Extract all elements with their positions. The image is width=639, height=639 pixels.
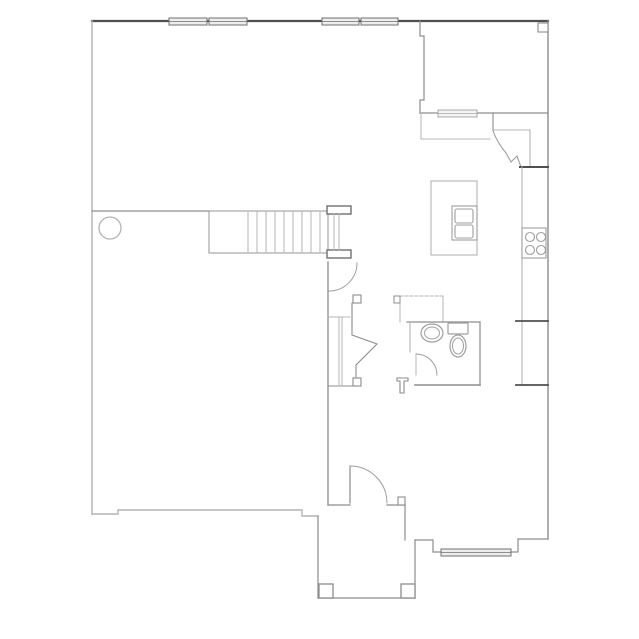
- utility-door-jamb: [394, 296, 400, 303]
- front-wall-right: [511, 539, 548, 552]
- floor-plan-page: [0, 0, 639, 639]
- window-upper-room: [438, 110, 477, 117]
- toilet-tank: [448, 323, 468, 334]
- window-top-4: [361, 18, 398, 25]
- stair-rail-post-bottom: [327, 250, 351, 258]
- island-sink-basin-upper: [455, 209, 473, 223]
- toilet-bowl-inner: [453, 338, 464, 354]
- closet-angled-wall: [352, 303, 377, 378]
- support-column: [99, 217, 121, 239]
- window-top-1: [169, 18, 207, 25]
- corner-post: [538, 23, 548, 32]
- bottom-exterior-wall: [92, 510, 318, 516]
- kitchen-island: [431, 181, 477, 255]
- upper-room-left-wall: [420, 21, 424, 113]
- floor-plan: [0, 0, 639, 639]
- window-top-2: [209, 18, 247, 25]
- stair-rail-post-top: [327, 206, 351, 214]
- front-door-arc: [350, 466, 387, 503]
- vanity-sink-inner: [425, 327, 440, 339]
- bath-door-arc: [416, 354, 437, 375]
- pantry-door-jamb: [511, 156, 521, 167]
- porch-column-left: [319, 584, 333, 598]
- entry-door-jamb: [398, 497, 405, 505]
- porch-column-right: [401, 584, 415, 598]
- island-sink-basin-lower: [455, 225, 473, 238]
- understair-door-arc: [329, 263, 357, 291]
- hall-wall-stub: [397, 378, 408, 393]
- closet-door-jamb-bottom: [353, 378, 361, 386]
- staircase-outline: [209, 211, 328, 253]
- window-front: [441, 549, 511, 556]
- closet-door-jamb-top: [353, 295, 361, 303]
- entry-right-jog-wall: [415, 540, 441, 552]
- window-top-3: [322, 18, 359, 25]
- pantry-door-leaf: [493, 131, 511, 162]
